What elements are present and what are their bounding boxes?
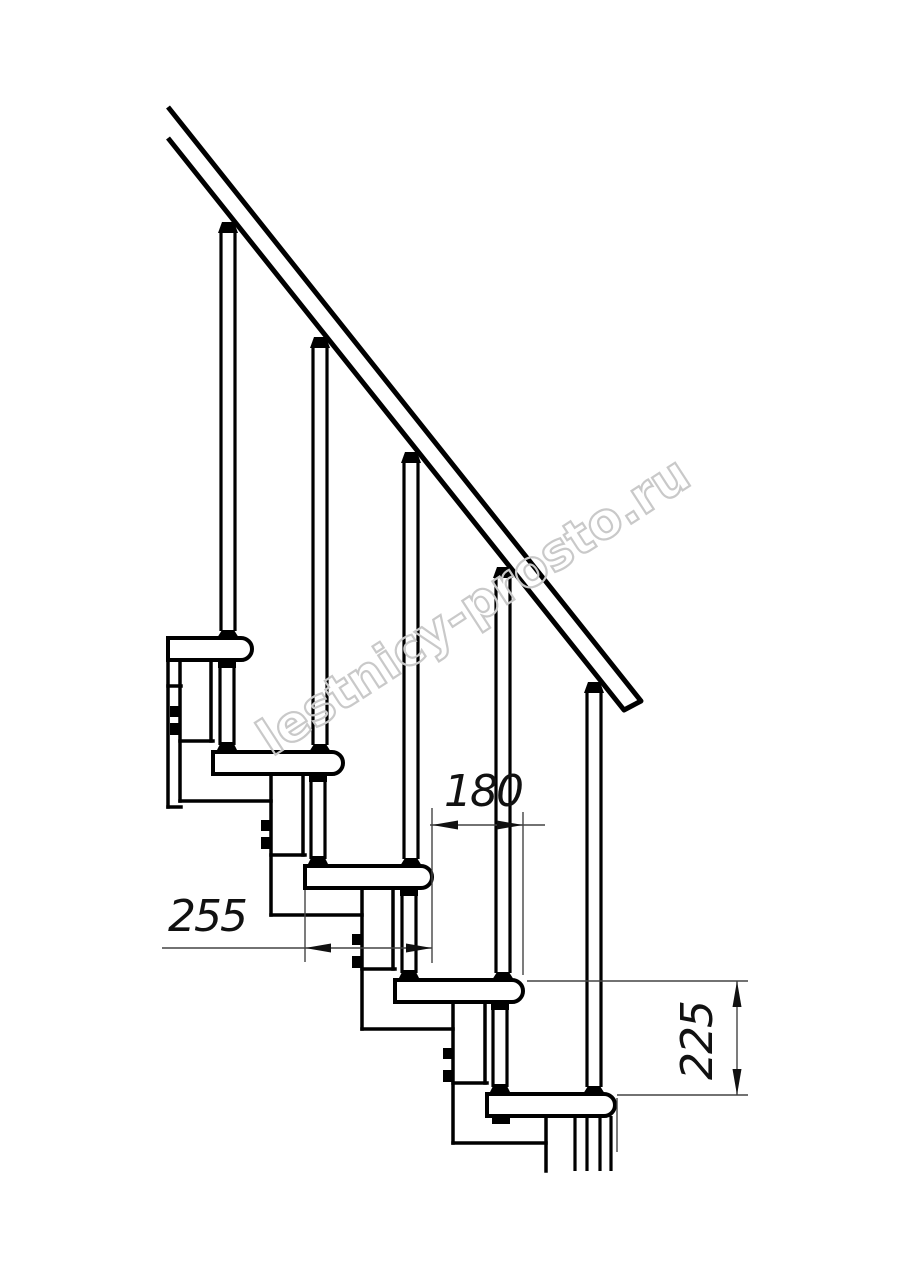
bolt-lug xyxy=(443,1048,454,1059)
tread-clamp xyxy=(309,744,331,752)
bolt-lug xyxy=(170,723,181,735)
baluster-5 xyxy=(583,682,605,1094)
dimension-180: 180 xyxy=(430,766,545,975)
dimension-225-value: 225 xyxy=(672,1002,723,1080)
support-rod-2 xyxy=(307,774,329,866)
arrowhead-left xyxy=(432,821,458,830)
dimension-255-value: 255 xyxy=(168,891,246,942)
tread-3 xyxy=(305,866,432,888)
support-rod-1 xyxy=(216,660,238,752)
dimension-180-value: 180 xyxy=(444,766,522,817)
bolt-lug xyxy=(352,956,363,968)
support-rod-4 xyxy=(489,1002,511,1094)
tread-clamp xyxy=(400,858,422,866)
tread-4 xyxy=(395,980,523,1002)
tread-1 xyxy=(168,638,252,660)
support-rod-3 xyxy=(398,888,420,980)
baluster-1 xyxy=(217,222,239,638)
staircase-drawing-page: 180 255 225 lestnicy-prosto.ru xyxy=(0,0,914,1280)
bolt-lug xyxy=(261,837,272,849)
tread-clamp xyxy=(217,630,239,638)
staircase-technical-drawing: 180 255 225 lestnicy-prosto.ru xyxy=(0,0,914,1280)
arrowhead-down xyxy=(733,1069,742,1095)
bolt-lug xyxy=(261,820,272,831)
arrowhead-up xyxy=(733,981,742,1007)
dimension-225: 225 xyxy=(527,981,748,1152)
tread-clamp xyxy=(583,1086,605,1094)
bolt-lug xyxy=(443,1070,454,1082)
arrowhead-right xyxy=(406,944,432,953)
tread-clamp xyxy=(492,972,514,980)
arrowhead-left xyxy=(305,944,331,953)
bolt-lug xyxy=(352,934,363,945)
tread-5 xyxy=(487,1094,615,1116)
bolt-lug xyxy=(170,706,181,717)
